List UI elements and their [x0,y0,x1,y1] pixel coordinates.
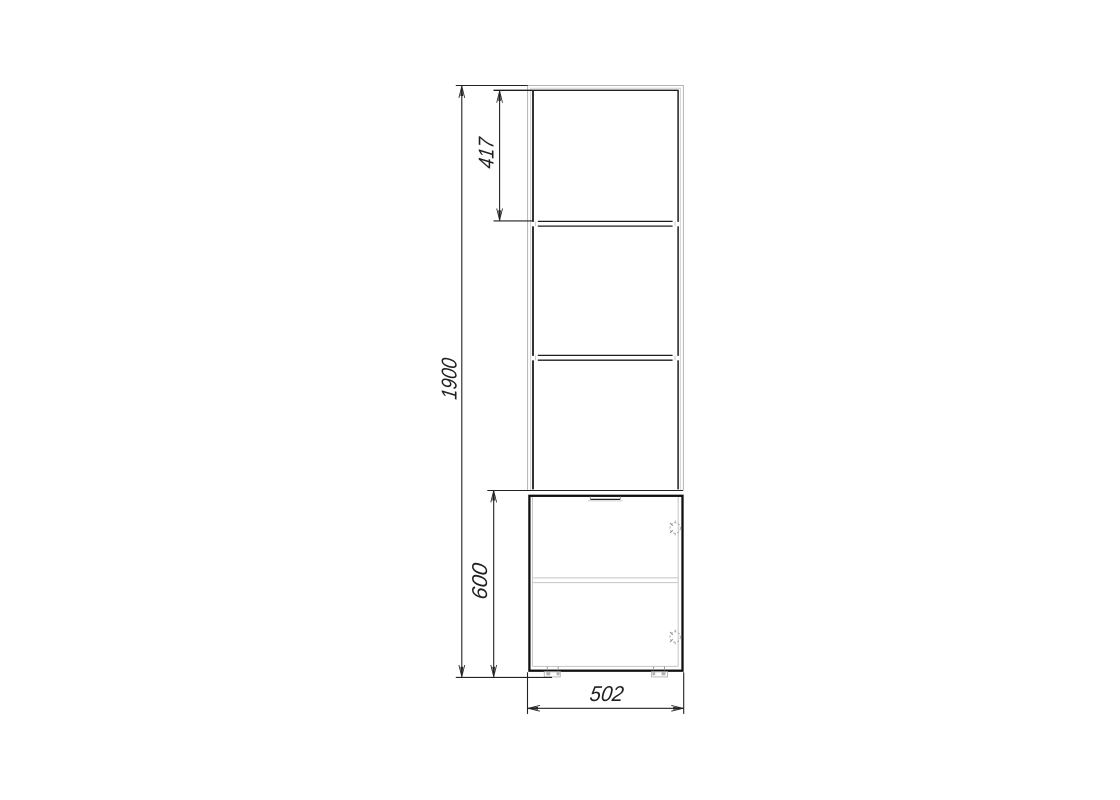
svg-text:417: 417 [473,135,498,170]
svg-text:1900: 1900 [437,356,462,400]
svg-text:502: 502 [588,681,625,706]
svg-text:600: 600 [467,561,492,600]
